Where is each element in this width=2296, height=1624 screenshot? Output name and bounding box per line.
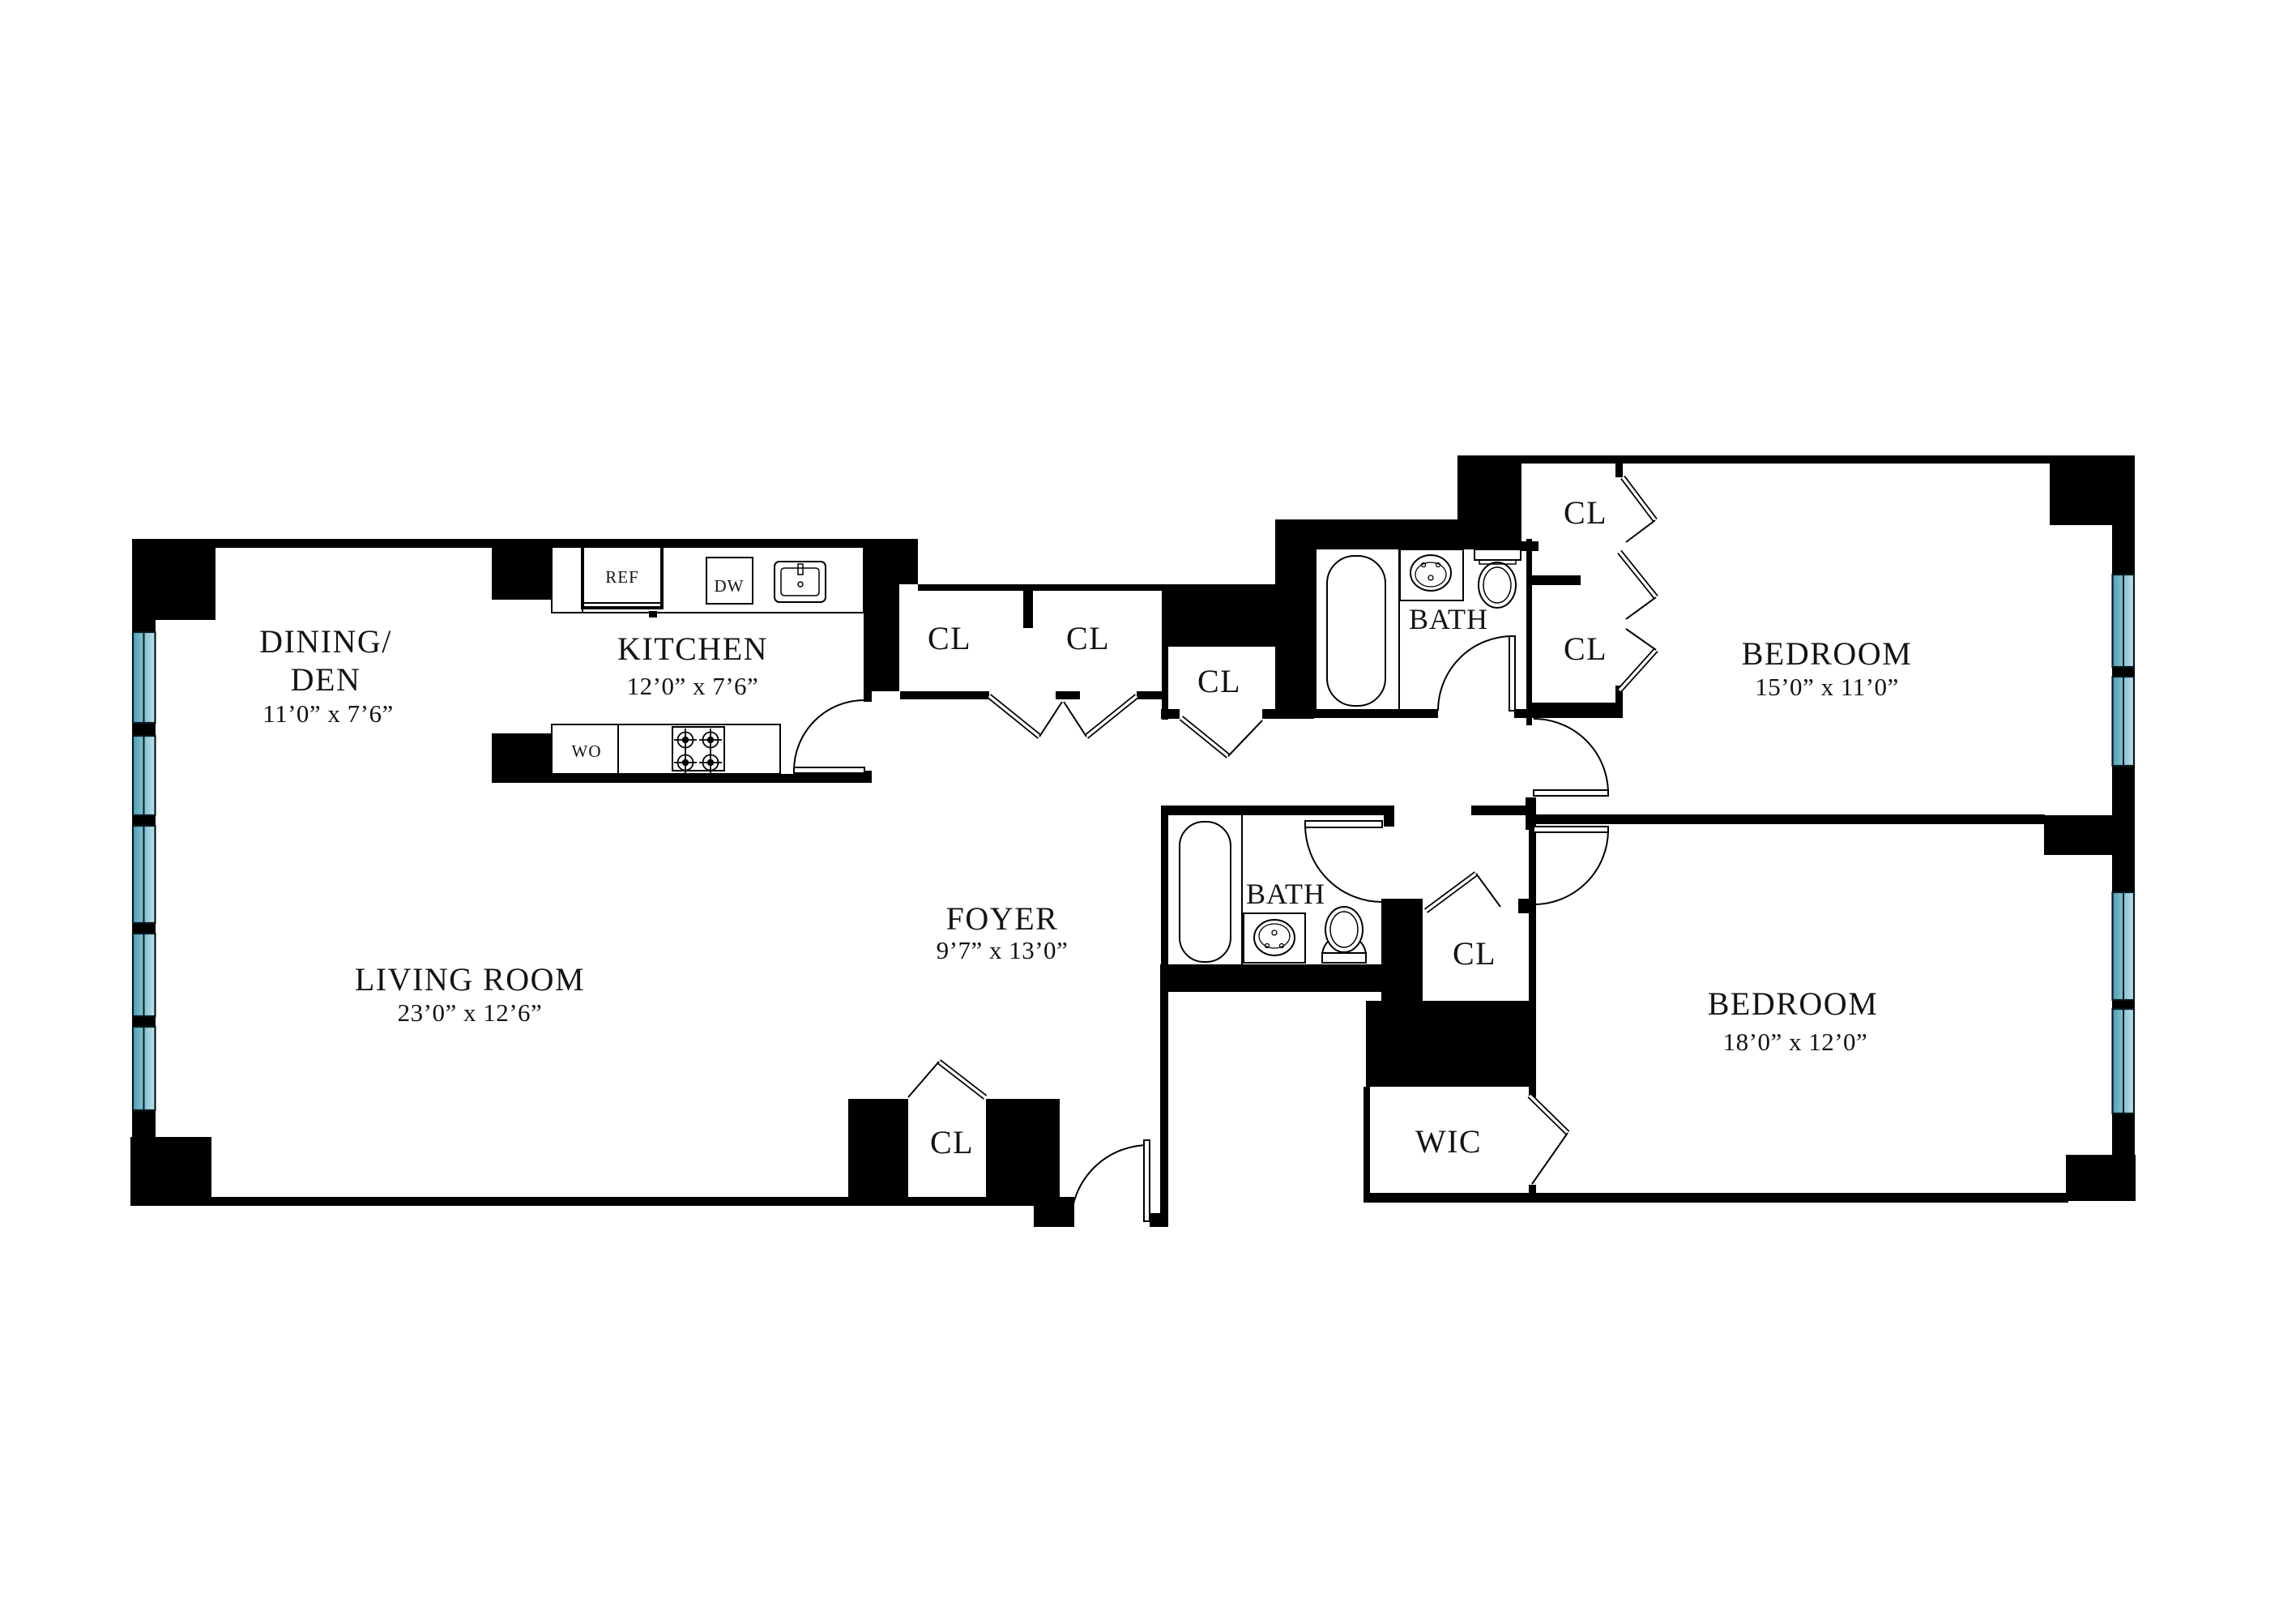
svg-text:CL: CL	[1564, 630, 1607, 667]
svg-text:23’0” x 12’6”: 23’0” x 12’6”	[398, 998, 543, 1027]
svg-text:BEDROOM: BEDROOM	[1708, 985, 1879, 1022]
svg-text:11’0” x 7’6”: 11’0” x 7’6”	[262, 699, 394, 728]
svg-text:CL: CL	[1066, 620, 1110, 656]
svg-text:BATH: BATH	[1409, 603, 1488, 635]
svg-text:CL: CL	[928, 620, 971, 656]
svg-text:CL: CL	[1564, 494, 1607, 531]
svg-text:15’0” x 11’0”: 15’0” x 11’0”	[1755, 673, 1899, 701]
svg-text:CL: CL	[1197, 663, 1241, 699]
svg-text:WIC: WIC	[1415, 1123, 1482, 1160]
svg-text:18’0” x 12’0”: 18’0” x 12’0”	[1723, 1028, 1868, 1056]
svg-text:FOYER: FOYER	[946, 900, 1059, 937]
svg-text:WO: WO	[572, 741, 602, 761]
svg-text:REF: REF	[605, 567, 639, 587]
svg-text:CL: CL	[930, 1124, 974, 1160]
svg-text:9’7” x 13’0”: 9’7” x 13’0”	[937, 936, 1069, 964]
svg-text:KITCHEN: KITCHEN	[617, 630, 768, 667]
svg-text:12’0” x 7’6”: 12’0” x 7’6”	[627, 672, 759, 700]
svg-text:BEDROOM: BEDROOM	[1742, 635, 1913, 672]
svg-text:DEN: DEN	[291, 661, 361, 698]
svg-text:CL: CL	[1453, 935, 1496, 972]
svg-text:DW: DW	[715, 576, 745, 596]
svg-text:DINING/: DINING/	[259, 623, 392, 660]
svg-text:LIVING ROOM: LIVING ROOM	[355, 961, 585, 998]
svg-text:BATH: BATH	[1246, 878, 1325, 910]
